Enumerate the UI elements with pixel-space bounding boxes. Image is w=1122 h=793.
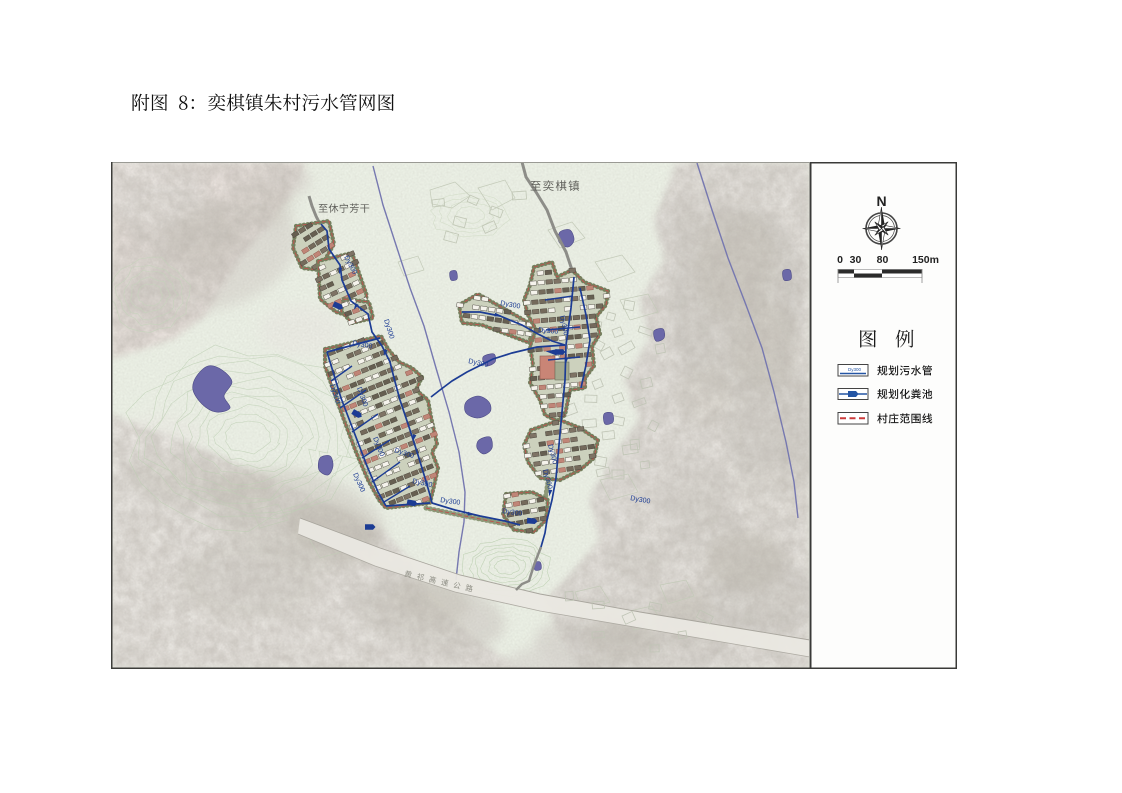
svg-text:30: 30: [850, 254, 862, 266]
svg-text:80: 80: [877, 254, 889, 266]
svg-text:Dy300: Dy300: [848, 367, 862, 372]
svg-text:N: N: [876, 193, 886, 209]
svg-text:0: 0: [837, 254, 843, 266]
svg-text:150m: 150m: [912, 254, 939, 266]
